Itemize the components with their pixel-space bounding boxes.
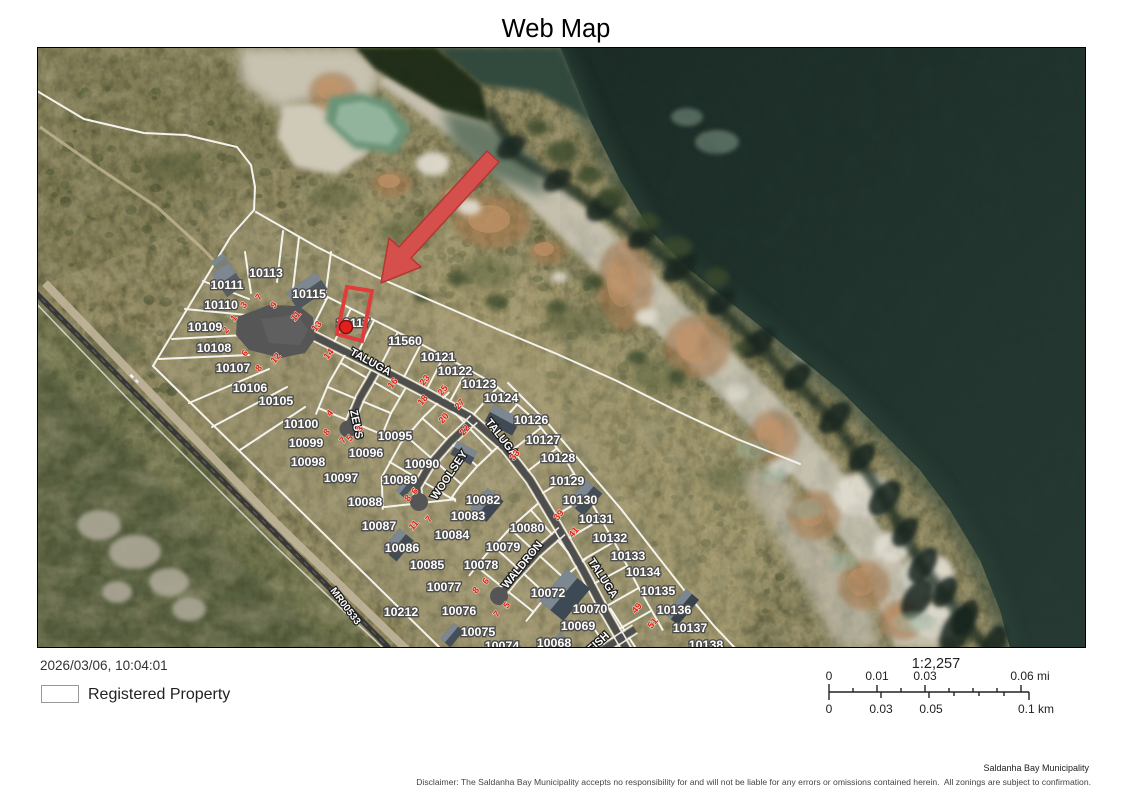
svg-text:0.1 km: 0.1 km <box>1018 702 1054 716</box>
svg-text:0: 0 <box>826 702 833 716</box>
svg-text:0.01: 0.01 <box>865 669 889 683</box>
svg-text:0.05: 0.05 <box>919 702 943 716</box>
svg-text:0: 0 <box>826 669 833 683</box>
svg-text:0.06 mi: 0.06 mi <box>1010 669 1049 683</box>
svg-text:0.03: 0.03 <box>869 702 893 716</box>
svg-text:0.03: 0.03 <box>913 669 937 683</box>
